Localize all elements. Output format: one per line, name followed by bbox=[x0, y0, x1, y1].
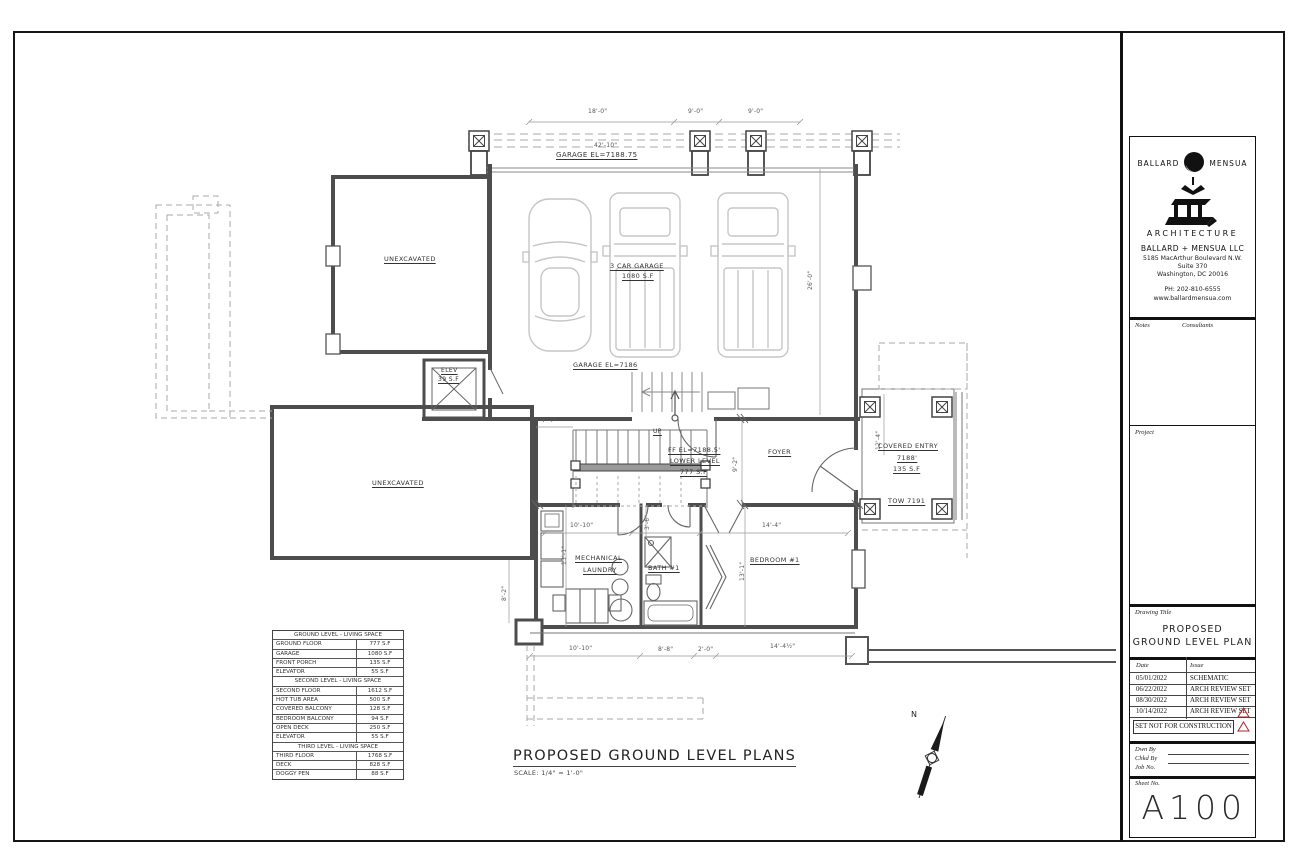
consultants-label: Consultants bbox=[1182, 322, 1213, 329]
dimension-label: 3'-6" bbox=[645, 515, 651, 530]
dimension-label: 4'-4" bbox=[541, 418, 556, 424]
room-label-unexcavated-lower: UNEXCAVATED bbox=[372, 480, 424, 487]
drawing-sheet: 18'-0" 9'-0" 9'-0" 42'-10" GARAGE EL=718… bbox=[0, 0, 1300, 867]
area-table-room: DECK bbox=[273, 761, 357, 769]
area-table-sqft: 88 S.F bbox=[357, 770, 403, 778]
area-table-section-header: SECOND LEVEL - LIVING SPACE bbox=[273, 677, 403, 686]
area-table-sqft: 777 S.F bbox=[357, 640, 403, 648]
area-table-sqft: 828 S.F bbox=[357, 761, 403, 769]
room-label-mechanical: MECHANICAL bbox=[575, 555, 622, 562]
top-dimension-line bbox=[526, 119, 803, 125]
area-table-room: FRONT PORCH bbox=[273, 659, 357, 667]
firm-address-line1: 5185 MacArthur Boulevard N.W. bbox=[1130, 255, 1255, 262]
plan-title: PROPOSED GROUND LEVEL PLANS bbox=[513, 748, 796, 767]
divider bbox=[1130, 604, 1255, 607]
entry-area-label: 135 S.F bbox=[893, 466, 920, 473]
area-table-row: OPEN DECK250 S.F bbox=[273, 724, 403, 733]
room-label-garage: 3 CAR GARAGE bbox=[610, 263, 664, 270]
dimension-label: 2'-0" bbox=[698, 647, 713, 653]
drawing-title-line1: PROPOSED bbox=[1130, 624, 1255, 635]
garage-area-label: 1080 S.F bbox=[622, 273, 654, 280]
title-block: BALLARD MENSUA ARCHITECTURE BALLARD + ME… bbox=[1129, 136, 1256, 838]
dimension-label: 10'-10" bbox=[569, 646, 592, 652]
job-no-label: Job No. bbox=[1135, 764, 1155, 771]
area-table-sqft: 1612 S.F bbox=[357, 687, 403, 695]
area-table-row: HOT TUB AREA500 S.F bbox=[273, 696, 403, 705]
dimension-label: 26'-0" bbox=[808, 271, 814, 290]
firm-phone: PH: 202-810-6555 bbox=[1130, 286, 1255, 293]
divider bbox=[1130, 776, 1255, 779]
walls bbox=[272, 166, 858, 644]
wall-fixtures bbox=[708, 388, 769, 409]
area-table-sqft: 94 S.F bbox=[357, 715, 403, 723]
plan-scale: SCALE: 1/4" = 1'-0" bbox=[514, 769, 583, 777]
area-table-row: BEDROOM BALCONY94 S.F bbox=[273, 715, 403, 724]
area-table-row: DOGGY PEN88 S.F bbox=[273, 770, 403, 778]
elevator-area-label: 39 S.F bbox=[438, 377, 459, 383]
area-table-sqft: 135 S.F bbox=[357, 659, 403, 667]
floor-plan-drawing bbox=[0, 0, 1300, 867]
area-table-row: GROUND FLOOR777 S.F bbox=[273, 640, 403, 649]
room-label-laundry: LAUNDRY bbox=[583, 567, 617, 574]
area-table-sqft: 55 S.F bbox=[357, 668, 403, 676]
room-label-bath: BATH #1 bbox=[648, 565, 680, 572]
area-table-room: BEDROOM BALCONY bbox=[273, 715, 357, 723]
issue-header: Issue bbox=[1190, 662, 1203, 669]
covered-entry-hidden bbox=[862, 343, 967, 558]
project-label: Project bbox=[1135, 429, 1154, 436]
divider bbox=[1130, 317, 1255, 320]
area-table: GROUND LEVEL - LIVING SPACEGROUND FLOOR7… bbox=[272, 630, 404, 780]
dimension-label: 14'-4" bbox=[762, 523, 781, 529]
garage-stair bbox=[632, 372, 702, 412]
dashed-outline-left bbox=[156, 196, 272, 418]
retaining-wall bbox=[846, 637, 1116, 664]
dimension-label: 9'-0" bbox=[748, 109, 763, 115]
room-label-bedroom: BEDROOM #1 bbox=[750, 557, 800, 564]
revision-triangle-icon bbox=[1237, 707, 1250, 718]
area-table-row: ELEVATOR55 S.F bbox=[273, 668, 403, 677]
drawing-title-label: Drawing Title bbox=[1135, 609, 1171, 616]
revision-issue: ARCH REVIEW SET bbox=[1190, 686, 1251, 693]
area-table-room: SECOND FLOOR bbox=[273, 687, 357, 695]
revision-triangle-icon bbox=[1237, 721, 1250, 732]
sheet-number: A100 bbox=[1141, 791, 1247, 824]
dimension-label: 10'-10" bbox=[570, 523, 593, 529]
area-table-room: GROUND FLOOR bbox=[273, 640, 357, 648]
bath-fixtures bbox=[644, 537, 697, 625]
area-table-sqft: 55 S.F bbox=[357, 733, 403, 741]
checked-by-field[interactable] bbox=[1168, 762, 1249, 764]
firm-address-line2: Suite 370 bbox=[1130, 263, 1255, 270]
finish-floor-elevation-label: FF EL=7188.5' bbox=[668, 447, 720, 454]
logo-text-right: MENSUA bbox=[1209, 159, 1247, 168]
checked-by-label: Chkd By bbox=[1135, 755, 1157, 762]
not-for-construction-stamp: SET NOT FOR CONSTRUCTION bbox=[1133, 720, 1234, 734]
revision-issue: SCHEMATIC bbox=[1190, 675, 1229, 682]
area-table-row: DECK828 S.F bbox=[273, 761, 403, 770]
dimension-label: 8'-8" bbox=[658, 647, 673, 653]
divider bbox=[1130, 425, 1255, 426]
hidden-lines-bottom bbox=[527, 645, 703, 726]
dimension-label: 13'-1" bbox=[562, 546, 568, 565]
dimension-label: 8'-2" bbox=[502, 586, 508, 601]
room-label-elevator: ELEV bbox=[441, 368, 458, 374]
logo-circle-icon bbox=[1182, 151, 1206, 175]
garage-columns bbox=[469, 131, 872, 175]
dimension-label: 12'-4" bbox=[876, 431, 882, 450]
revision-date: 06/22/2022 bbox=[1136, 686, 1167, 693]
room-label-covered-entry: COVERED ENTRY bbox=[878, 443, 938, 450]
revision-issue: ARCH REVIEW SET bbox=[1190, 697, 1251, 704]
area-table-room: GARAGE bbox=[273, 650, 357, 658]
area-table-room: OPEN DECK bbox=[273, 724, 357, 732]
revision-date: 08/30/2022 bbox=[1136, 697, 1167, 704]
top-of-wall-label: TOW 7191 bbox=[888, 498, 925, 505]
area-table-room: DOGGY PEN bbox=[273, 770, 357, 778]
area-table-room: ELEVATOR bbox=[273, 668, 357, 676]
garage-elevation-mid-label: GARAGE EL=7186 bbox=[573, 362, 638, 369]
area-table-room: THIRD FLOOR bbox=[273, 752, 357, 760]
firm-name: BALLARD + MENSUA LLC bbox=[1130, 244, 1255, 253]
dimension-label: 9'-2" bbox=[733, 457, 739, 472]
date-header: Date bbox=[1136, 662, 1149, 669]
north-arrow bbox=[912, 714, 952, 800]
elevator bbox=[432, 368, 503, 410]
room-label-foyer: FOYER bbox=[768, 449, 791, 456]
dimension-label: 18'-0" bbox=[588, 109, 607, 115]
area-table-sqft: 1080 S.F bbox=[357, 650, 403, 658]
sheet-no-label: Sheet No. bbox=[1135, 780, 1160, 787]
drawing-title-line2: GROUND LEVEL PLAN bbox=[1130, 637, 1255, 648]
area-table-sqft: 250 S.F bbox=[357, 724, 403, 732]
car-truck-2 bbox=[711, 193, 795, 357]
up-label: UP bbox=[653, 429, 662, 435]
area-table-row: SECOND FLOOR1612 S.F bbox=[273, 687, 403, 696]
area-table-section-header: THIRD LEVEL - LIVING SPACE bbox=[273, 743, 403, 752]
logo-sculpture-icon bbox=[1165, 177, 1221, 227]
lower-level-label: LOWER LEVEL bbox=[670, 458, 720, 465]
area-table-sqft: 500 S.F bbox=[357, 696, 403, 704]
dimension-label: 42'-10" bbox=[594, 143, 617, 149]
area-table-row: ELEVATOR55 S.F bbox=[273, 733, 403, 742]
area-table-sqft: 1768 S.F bbox=[357, 752, 403, 760]
area-table-section-header: GROUND LEVEL - LIVING SPACE bbox=[273, 631, 403, 640]
area-table-room: COVERED BALCONY bbox=[273, 705, 357, 713]
car-sedan bbox=[523, 199, 597, 351]
north-label: N bbox=[911, 710, 917, 719]
area-table-room: HOT TUB AREA bbox=[273, 696, 357, 704]
area-table-row: COVERED BALCONY128 S.F bbox=[273, 705, 403, 714]
notes-label: Notes bbox=[1135, 322, 1150, 329]
area-table-room: ELEVATOR bbox=[273, 733, 357, 741]
room-label-unexcavated-upper: UNEXCAVATED bbox=[384, 256, 436, 263]
door-swings bbox=[618, 419, 856, 609]
dimension-label: 14'-4½" bbox=[770, 644, 795, 650]
divider bbox=[1130, 741, 1255, 744]
dimension-label: 13'-1" bbox=[740, 562, 746, 581]
revision-date: 10/14/2022 bbox=[1136, 708, 1167, 715]
firm-website: www.ballardmensua.com bbox=[1130, 295, 1255, 302]
revision-date: 05/01/2022 bbox=[1136, 675, 1167, 682]
lower-level-area-label: 777 S.F bbox=[680, 469, 707, 476]
area-table-row: GARAGE1080 S.F bbox=[273, 650, 403, 659]
drawn-by-field[interactable] bbox=[1168, 753, 1249, 755]
area-table-sqft: 128 S.F bbox=[357, 705, 403, 713]
stairs-hidden bbox=[573, 476, 707, 506]
roof-dashed-lines bbox=[468, 134, 900, 147]
drawn-by-label: Dwn By bbox=[1135, 746, 1156, 753]
entry-elevation-label: 7188' bbox=[897, 455, 917, 462]
area-table-row: THIRD FLOOR1768 S.F bbox=[273, 752, 403, 761]
logo-text-left: BALLARD bbox=[1137, 159, 1179, 168]
firm-address-line3: Washington, DC 20016 bbox=[1130, 271, 1255, 278]
logo-subtitle: ARCHITECTURE bbox=[1130, 229, 1255, 238]
area-table-row: FRONT PORCH135 S.F bbox=[273, 659, 403, 668]
garage-elevation-upper-label: GARAGE EL=7188.75 bbox=[556, 152, 637, 159]
dimension-label: 9'-0" bbox=[688, 109, 703, 115]
